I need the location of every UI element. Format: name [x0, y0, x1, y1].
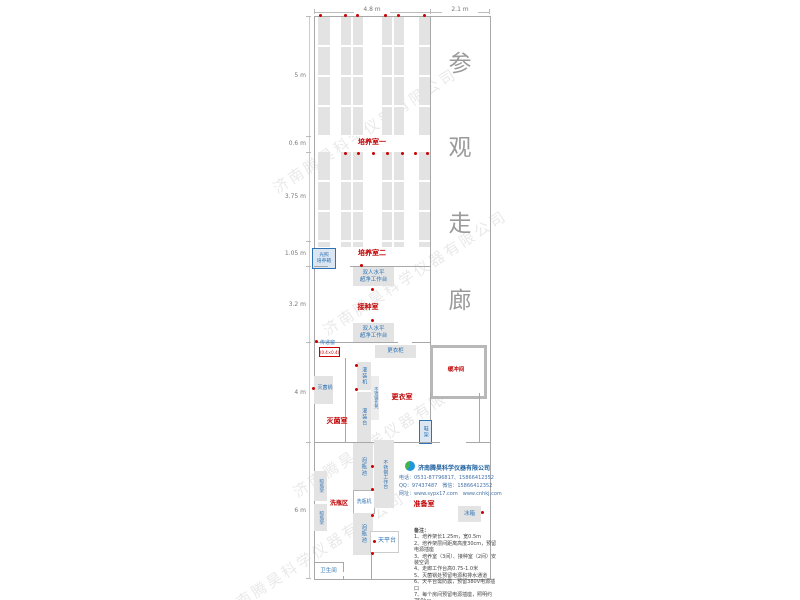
company-website: 网址：www.sypx17.com www.cnhkj.com: [399, 491, 502, 497]
dimension-tick: [306, 136, 311, 137]
outlet-dot: [312, 387, 315, 390]
interior-wall: [371, 555, 372, 579]
outlet-dot: [371, 514, 374, 517]
clean-bench: 双人水平 超净工作台: [353, 323, 394, 342]
dimension-label-left-4: 1.05 m: [280, 250, 306, 257]
dimension-label-left-6: 4 m: [280, 389, 306, 396]
shoe-rack-label: 鞋架: [422, 426, 429, 438]
bottle-drying-rack: 晾瓶架: [314, 504, 327, 531]
shoe-rack: 鞋架: [419, 420, 432, 444]
room-label-culture2: 培养室二: [352, 249, 392, 257]
culture-rack: [318, 152, 330, 247]
outlet-dot: [355, 364, 358, 367]
company-logo-icon: [405, 461, 415, 471]
corridor-title-char: 廊: [444, 281, 476, 315]
stainless-bench-label: 不锈钢长凳: [372, 387, 379, 409]
note-item: 2、培养架层间距离高度30cm，预留电源插座: [414, 541, 498, 554]
fridge: 冰箱: [458, 506, 481, 522]
dimension-label-left-7: 6 m: [280, 507, 306, 514]
room-label-buffer: 缓冲间: [435, 366, 477, 374]
note-item: 7、每个房间预留电源插座，照明约750lux: [414, 592, 498, 600]
bottle-drying-rack-label: 晾瓶架: [317, 511, 324, 525]
filling-table: 灌装台: [357, 392, 371, 442]
outlet-dot: [401, 152, 404, 155]
company-qq: QQ：97437487 微信：15866412352: [399, 483, 492, 489]
outlet-dot: [423, 14, 426, 17]
light-incubator-label: 培养箱: [317, 259, 331, 265]
corridor-title-char: 参: [444, 44, 476, 78]
pass-window-label: 传递窗: [320, 340, 340, 347]
pass-window-size: (0.4×0.4): [319, 347, 340, 357]
dimension-tick: [306, 342, 311, 343]
interior-wall: [466, 442, 490, 443]
culture-rack: [382, 152, 404, 247]
filling-machine-label: 灌装机: [361, 367, 368, 385]
bottle-washer-label: 洗瓶机: [356, 499, 371, 506]
culture-rack: [318, 17, 330, 136]
dimension-tick: [306, 16, 311, 17]
corridor-title-char: 观: [444, 128, 476, 162]
dimension-label-top-2: 2.1 m: [442, 6, 478, 13]
corridor-title-char: 走: [444, 204, 476, 238]
dimension-label-top-1: 4.8 m: [354, 6, 390, 13]
soaking-pool-label: 泡瓶池: [360, 524, 367, 544]
outlet-dot: [426, 152, 429, 155]
clean-bench-label: 超净工作台: [360, 277, 388, 284]
interior-wall: [345, 358, 346, 442]
room-label-culture1: 培养室一: [352, 138, 392, 146]
outlet-dot: [397, 14, 400, 17]
dimension-tick: [306, 442, 311, 443]
outlet-dot: [360, 264, 363, 267]
dimension-label-left-5: 3.2 m: [280, 301, 306, 308]
outlet-dot: [371, 288, 374, 291]
stainless-worktable-label: 不锈钢工作台: [381, 460, 388, 489]
dimension-tick: [306, 266, 311, 267]
dimension-tick: [306, 241, 311, 242]
outlet-dot: [372, 152, 375, 155]
company-name: 济南腾昊科学仪器有限公司: [418, 463, 490, 472]
outlet-dot: [356, 14, 359, 17]
interior-wall: [412, 342, 430, 343]
room-label-inoculation: 接种室: [348, 303, 388, 311]
balance-table-label: 天平台: [376, 538, 398, 545]
outlet-dot: [357, 152, 360, 155]
interior-wall: [479, 393, 480, 442]
sterilizer-label: 灭菌锅: [315, 385, 335, 392]
dimension-tick: [314, 9, 315, 14]
room-label-prep: 准备室: [404, 500, 444, 508]
filling-table-label: 灌装台: [361, 408, 368, 426]
dimension-tick: [430, 9, 431, 14]
soaking-pool-label: 泡瓶池: [360, 457, 367, 477]
interior-wall: [314, 562, 343, 563]
outlet-dot: [414, 152, 417, 155]
culture-rack: [419, 17, 430, 136]
outlet-dot: [371, 552, 374, 555]
dimension-label-left-1: 5 m: [280, 72, 306, 79]
stainless-bench: 不锈钢长凳: [371, 376, 379, 420]
outlet-dot: [315, 340, 318, 343]
room-label-toilet: 卫生间: [315, 568, 342, 575]
dimension-tick: [489, 9, 490, 14]
outlet-dot: [371, 465, 374, 468]
outlet-dot: [344, 152, 347, 155]
wardrobe-label: 更衣柜: [387, 348, 404, 355]
dimension-tick: [306, 578, 311, 579]
bottle-drying-rack: 晾瓶架: [314, 471, 327, 501]
soaking-pool: 泡瓶池: [353, 443, 373, 490]
culture-rack: [341, 152, 363, 247]
dimension-line-left: [309, 16, 310, 579]
dimension-label-left-2: 0.6 m: [280, 140, 306, 147]
stainless-worktable: 不锈钢工作台: [374, 440, 394, 508]
note-item: 3、培养室（3间）、接种室（2间）安装空调: [414, 554, 498, 567]
clean-bench-label: 超净工作台: [360, 333, 388, 340]
buffer-door-gap: [445, 390, 459, 394]
outlet-dot: [384, 14, 387, 17]
room-label-sterilization: 灭菌室: [317, 417, 357, 425]
note-item: 6、天平台需防震，预留380V电源插口: [414, 579, 498, 592]
room-label-changing: 更衣室: [382, 393, 422, 401]
outlet-dot: [344, 14, 347, 17]
outlet-dot: [355, 388, 358, 391]
interior-wall: [343, 562, 344, 572]
floorplan-canvas: 济南腾昊科学仪器有限公司 济南腾昊科学仪器有限公司 济南腾昊科学仪器有限公司 济…: [0, 0, 800, 600]
bottle-washer: 洗瓶机: [353, 490, 375, 514]
bottle-drying-rack-label: 晾瓶架: [317, 479, 324, 493]
outlet-dot: [371, 488, 374, 491]
filling-machine: 灌装机: [357, 362, 371, 390]
fridge-label: 冰箱: [464, 511, 475, 518]
company-phone: 电话：0531-87796817、15866412352: [399, 475, 494, 481]
dimension-label-left-3: 3.75 m: [280, 193, 306, 200]
corridor-wall: [430, 16, 431, 345]
room-label-washing: 洗瓶区: [322, 500, 356, 508]
wardrobe: 更衣柜: [375, 345, 416, 358]
interior-wall: [343, 576, 344, 579]
outlet-dot: [481, 511, 484, 514]
clean-bench: 双人水平 超净工作台: [353, 267, 394, 286]
outlet-dot: [373, 540, 376, 543]
culture-rack: [382, 17, 404, 136]
interior-wall: [314, 266, 328, 267]
culture-rack: [419, 152, 430, 247]
notes-block: 备注： 1、培养架长1.25m，宽0.5m 2、培养架层间距离高度30cm，预留…: [414, 528, 498, 600]
outlet-dot: [371, 319, 374, 322]
culture-rack: [341, 17, 363, 136]
outlet-dot: [386, 152, 389, 155]
outlet-dot: [319, 14, 322, 17]
dimension-tick: [306, 152, 311, 153]
